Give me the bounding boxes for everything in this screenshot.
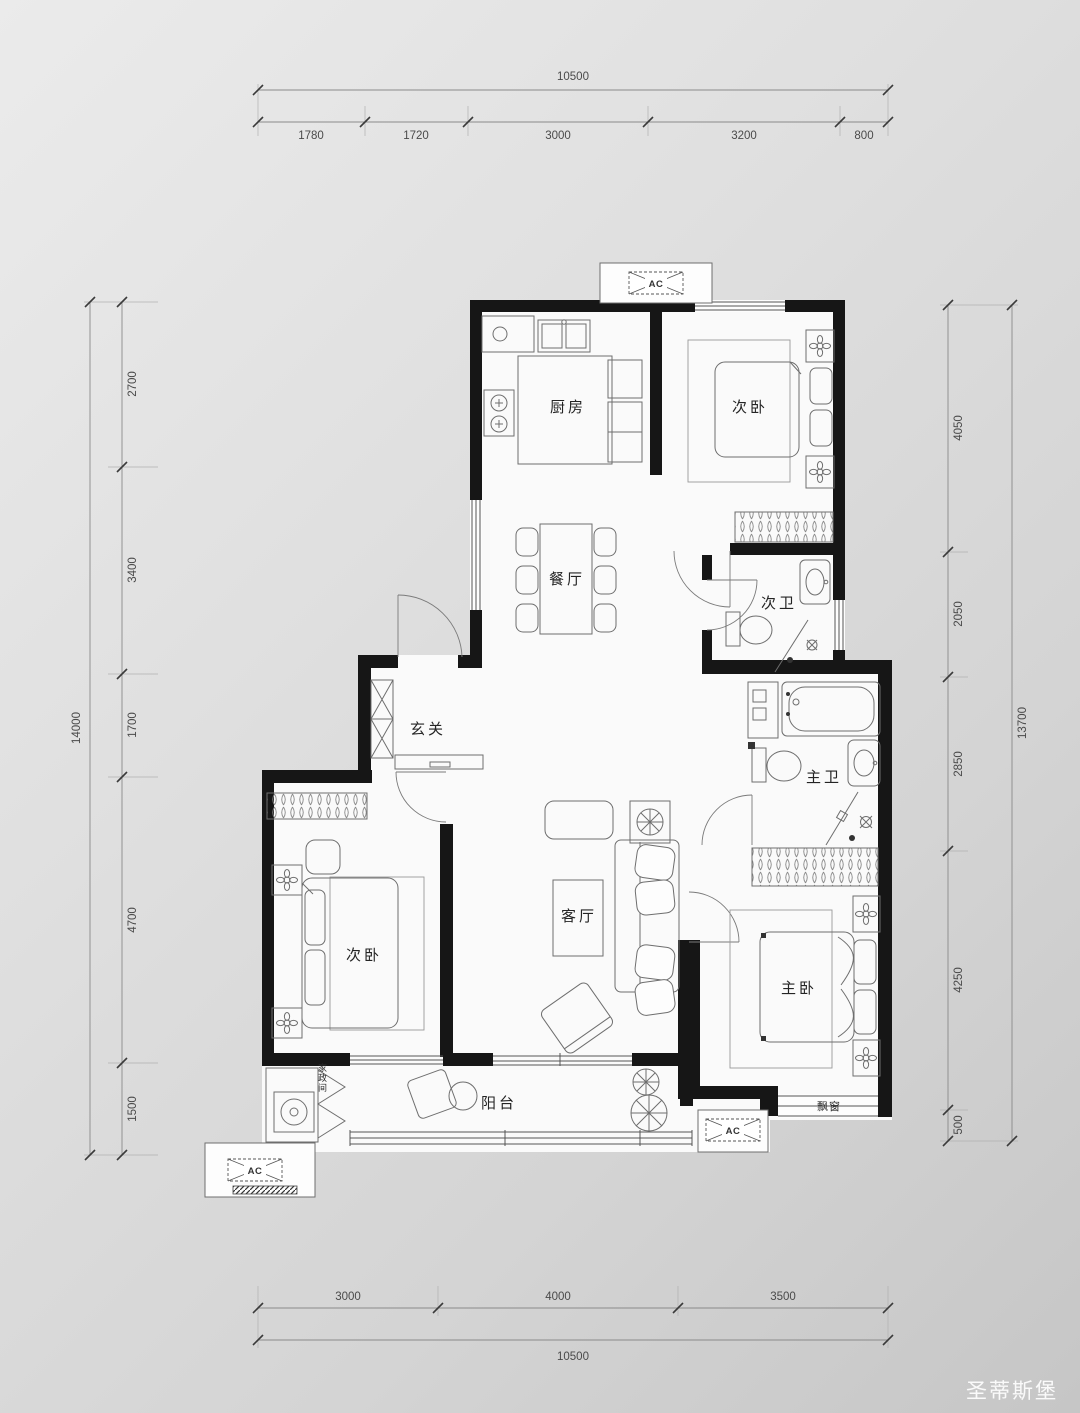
dim-top-seg3: 3200 bbox=[731, 130, 757, 142]
room-label-entry: 玄关 bbox=[410, 721, 446, 738]
ac-label: AC bbox=[649, 279, 664, 290]
dim-bottom-seg2: 3500 bbox=[770, 1291, 796, 1303]
dim-top-seg2: 3000 bbox=[545, 130, 571, 142]
ac-label: AC bbox=[248, 1166, 263, 1177]
dim-right-seg4: 500 bbox=[953, 1115, 965, 1134]
dim-left-seg0: 2700 bbox=[127, 371, 139, 397]
dim-left-seg2: 1700 bbox=[127, 712, 139, 738]
wardrobe bbox=[267, 793, 367, 819]
wardrobe bbox=[735, 512, 833, 542]
dim-bottom-seg1: 4000 bbox=[545, 1291, 571, 1303]
ac-unit-bottom-left: AC bbox=[205, 1143, 315, 1197]
room-label-kitchen: 厨房 bbox=[550, 399, 586, 416]
room-label-master-bath: 主卫 bbox=[806, 769, 842, 786]
window-dining-left bbox=[470, 500, 482, 610]
dim-top-seg0: 1780 bbox=[298, 130, 324, 142]
dim-right-seg3: 4250 bbox=[953, 967, 965, 993]
dimension-chain-bottom: 3000 4000 3500 10500 bbox=[253, 1286, 893, 1363]
ac-unit-bottom-right: AC bbox=[698, 1110, 768, 1152]
master-wardrobe bbox=[752, 848, 878, 886]
dim-top-total: 10500 bbox=[557, 71, 589, 83]
room-label-bedroom2: 次卧 bbox=[732, 399, 768, 416]
room-label-utility: 家政间 bbox=[317, 1062, 327, 1093]
dimension-chain-left: 14000 2700 3400 1700 4700 1500 bbox=[71, 297, 158, 1160]
room-label-dining: 餐厅 bbox=[549, 571, 585, 588]
dimension-chain-top: 10500 1780 1720 3000 3200 800 bbox=[253, 71, 893, 142]
window-balcony-outer bbox=[350, 1130, 692, 1146]
room-label-balcony: 阳台 bbox=[481, 1095, 517, 1112]
dim-right-seg2: 2850 bbox=[953, 751, 965, 777]
entry-door bbox=[398, 595, 462, 657]
dim-right-seg1: 2050 bbox=[953, 601, 965, 627]
floor-footprint bbox=[262, 300, 892, 1152]
dim-left-seg1: 3400 bbox=[127, 557, 139, 583]
dim-left-total: 14000 bbox=[71, 712, 83, 744]
room-label-bath2: 次卫 bbox=[761, 595, 797, 612]
ac-unit-top: AC bbox=[600, 263, 712, 303]
dimension-chain-right: 4050 2050 2850 4250 500 13700 bbox=[940, 300, 1029, 1146]
floor-plan: AC AC AC 10500 1780 1720 3000 3200 800 3… bbox=[0, 0, 1080, 1413]
room-label-bay-window: 飘窗 bbox=[817, 1099, 841, 1113]
room-label-bedroom3: 次卧 bbox=[346, 947, 382, 964]
room-label-living: 客厅 bbox=[561, 908, 597, 925]
dim-top-seg1: 1720 bbox=[403, 130, 429, 142]
dim-bottom-total: 10500 bbox=[557, 1351, 589, 1363]
dim-left-seg3: 4700 bbox=[127, 907, 139, 933]
ac-label: AC bbox=[726, 1126, 741, 1137]
dim-right-total: 13700 bbox=[1017, 707, 1029, 739]
dim-top-seg4: 800 bbox=[854, 130, 873, 142]
watermark: 圣蒂斯堡 bbox=[966, 1380, 1058, 1403]
window-bath2-right bbox=[833, 600, 845, 650]
dim-left-seg4: 1500 bbox=[127, 1096, 139, 1122]
dim-bottom-seg0: 3000 bbox=[335, 1291, 361, 1303]
dim-right-seg0: 4050 bbox=[953, 415, 965, 441]
room-label-master-bedroom: 主卧 bbox=[781, 980, 817, 997]
